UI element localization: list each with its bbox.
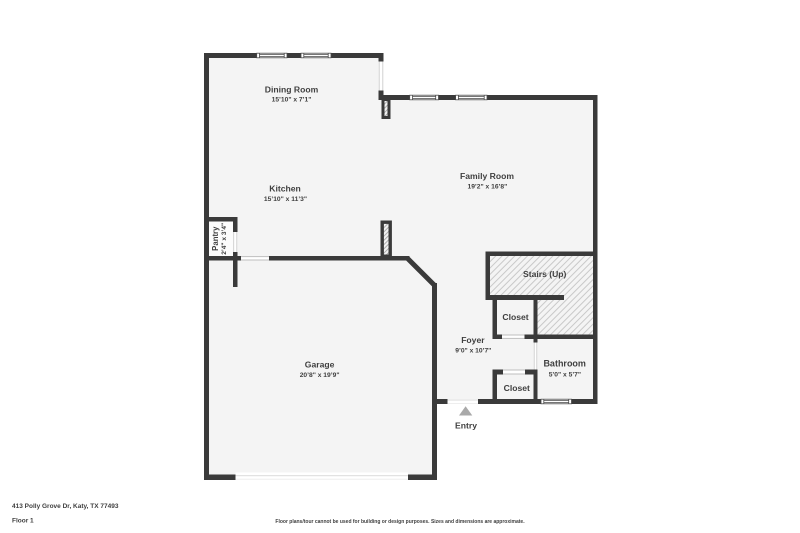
svg-text:Garage: Garage	[305, 360, 335, 370]
svg-text:Foyer: Foyer	[461, 335, 485, 345]
svg-text:2’4" x 3’4": 2’4" x 3’4"	[221, 223, 228, 255]
svg-text:Closet: Closet	[502, 312, 528, 322]
svg-text:Bathroom: Bathroom	[543, 358, 586, 368]
svg-text:Family Room: Family Room	[460, 171, 514, 181]
svg-text:Closet: Closet	[504, 383, 530, 393]
svg-text:9’0" x 10’7": 9’0" x 10’7"	[455, 347, 491, 354]
svg-text:Stairs (Up): Stairs (Up)	[523, 269, 567, 279]
svg-text:15’10" x 7’1": 15’10" x 7’1"	[272, 96, 312, 103]
svg-text:5’0" x 5’7": 5’0" x 5’7"	[549, 372, 581, 379]
svg-text:413 Polly Grove Dr, Katy, TX 7: 413 Polly Grove Dr, Katy, TX 77493	[12, 503, 119, 510]
svg-text:Pantry: Pantry	[211, 226, 220, 251]
svg-text:Entry: Entry	[455, 420, 477, 430]
svg-text:Dining Room: Dining Room	[265, 85, 319, 95]
svg-text:Floor 1: Floor 1	[12, 518, 34, 525]
svg-text:20’8" x 19’9": 20’8" x 19’9"	[300, 372, 340, 379]
svg-text:19’2" x 16’8": 19’2" x 16’8"	[467, 183, 507, 190]
svg-text:Floor plans/tour cannot be use: Floor plans/tour cannot be used for buil…	[275, 519, 525, 525]
svg-text:15’10" x 11’3": 15’10" x 11’3"	[264, 196, 307, 203]
svg-text:Kitchen: Kitchen	[269, 184, 301, 194]
